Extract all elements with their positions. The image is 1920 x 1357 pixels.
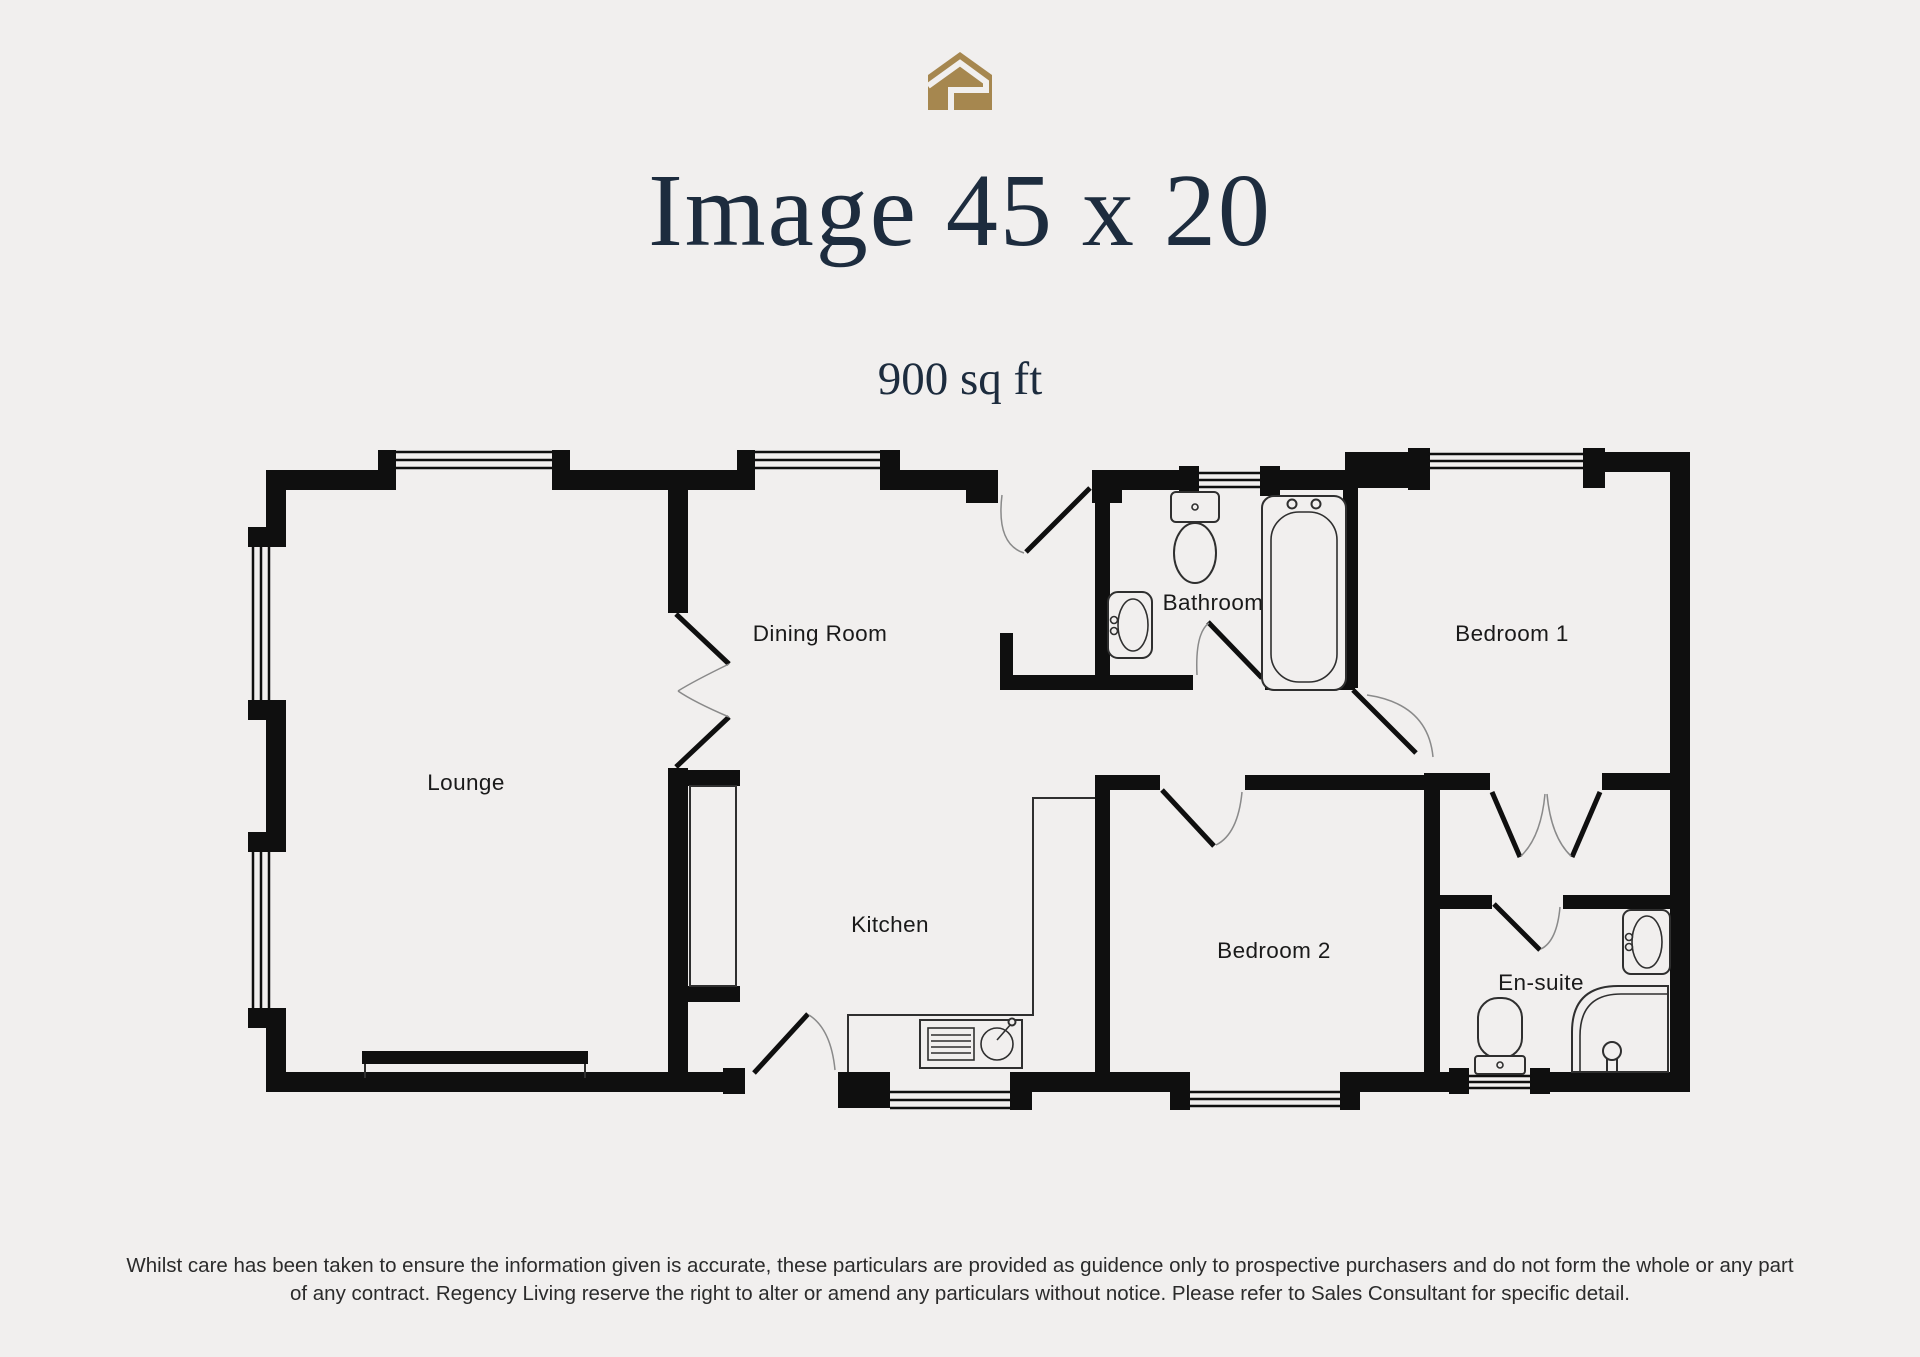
disclaimer-line-1: Whilst care has been taken to ensure the… [0, 1252, 1920, 1280]
room-label-bedroom-2: Bedroom 2 [1217, 938, 1331, 963]
room-label-dining-room: Dining Room [753, 621, 887, 646]
room-label-lounge: Lounge [427, 770, 504, 795]
bathroom-toilet-icon [1171, 492, 1219, 583]
ensuite-shower-icon [1572, 986, 1668, 1072]
bathroom-door [1208, 622, 1262, 678]
disclaimer-line-2: of any contract. Regency Living reserve … [0, 1280, 1920, 1308]
disclaimer: Whilst care has been taken to ensure the… [0, 1252, 1920, 1308]
kitchen-sink-icon [920, 1019, 1022, 1069]
bathtub-icon [1262, 496, 1346, 690]
ensuite-basin-icon [1623, 910, 1670, 974]
room-label-kitchen: Kitchen [851, 912, 929, 937]
floorplan-page: Image 45 x 20 900 sq ft [0, 0, 1920, 1357]
lounge-double-door [676, 614, 729, 664]
floorplan-drawing: Lounge Dining Room Kitchen Bathroom Bedr… [0, 0, 1920, 1357]
bathroom-basin-icon [1108, 592, 1152, 658]
ensuite-door [1494, 904, 1540, 950]
kitchen-recess [690, 786, 736, 986]
room-label-en-suite: En-suite [1498, 970, 1584, 995]
room-label-bedroom-1: Bedroom 1 [1455, 621, 1569, 646]
room-label-bathroom: Bathroom [1163, 590, 1264, 615]
bedroom2-door [1162, 790, 1214, 846]
ensuite-toilet-icon [1475, 998, 1525, 1074]
front-door [1026, 488, 1090, 552]
hall-double-door [1492, 792, 1520, 857]
kitchen-door [754, 1014, 808, 1073]
